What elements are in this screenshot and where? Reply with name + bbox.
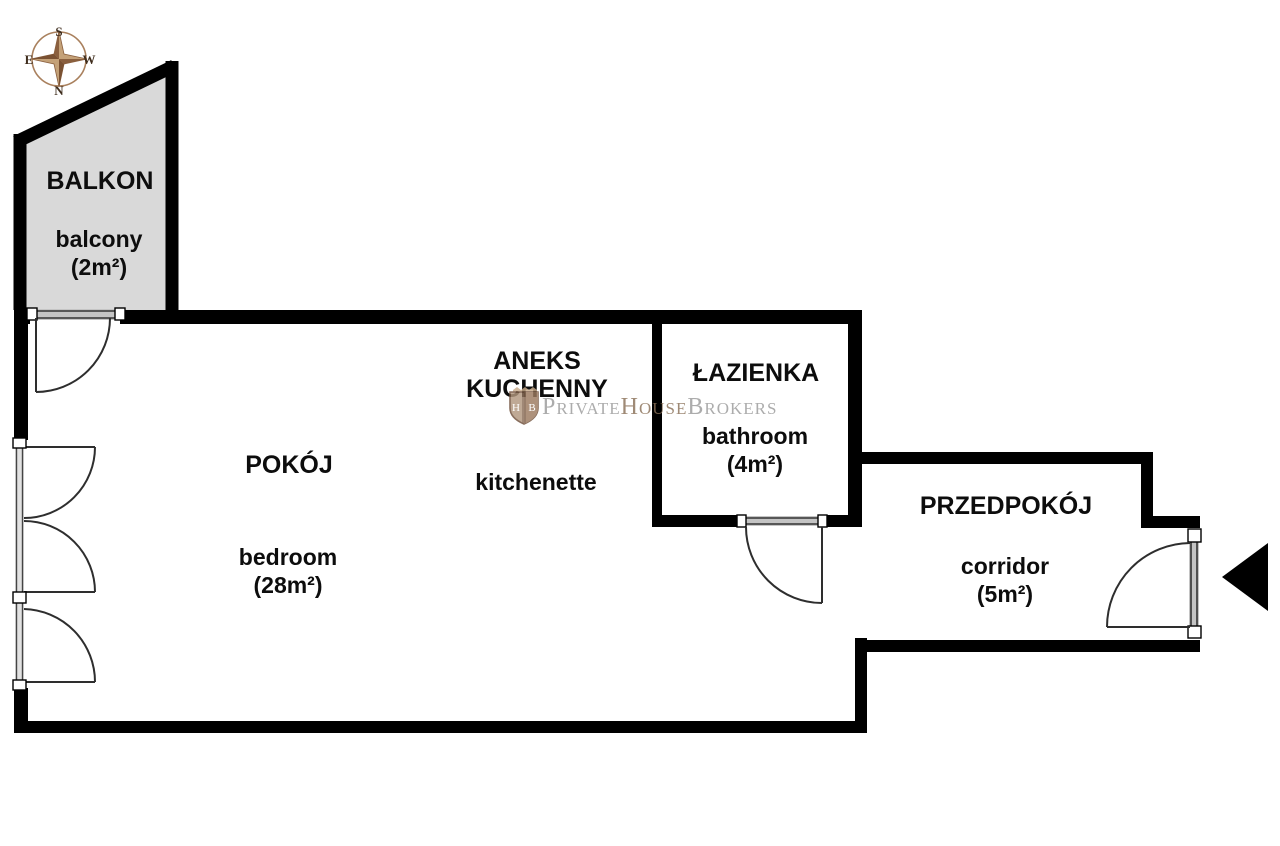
balcony-label-en: balcony (2m²): [56, 225, 143, 281]
floor-plan-page: S N E W BALKON balcony (2m²) POKÓJ bedro…: [0, 0, 1280, 846]
bedroom-area: (28m²): [239, 571, 337, 599]
bedroom-label-en: bedroom (28m²): [239, 543, 337, 599]
compass-label-north: N: [54, 83, 64, 98]
top-wall-bathroom: [652, 310, 862, 324]
corridor-bottom-wall: [855, 640, 1200, 652]
left-wall-upper: [14, 310, 28, 440]
bathroom-door-threshold: [737, 515, 827, 527]
corridor-label-en: corridor (5m²): [961, 552, 1049, 608]
balcony-area: (2m²): [56, 253, 143, 281]
balcony-label-pl: BALKON: [47, 167, 154, 195]
compass-label-west: W: [83, 52, 96, 67]
step-wall: [855, 638, 867, 733]
window-unit-lower: [15, 603, 24, 680]
bathroom-area: (4m²): [702, 450, 808, 478]
bathroom-right-wall: [848, 310, 862, 527]
floor-plan-drawing: S N E W: [0, 0, 1280, 846]
entrance-arrow: [1222, 543, 1268, 611]
bathroom-bottom-wall-left: [652, 515, 740, 527]
compass-label-east: E: [25, 52, 34, 67]
bathroom-label-pl: ŁAZIENKA: [693, 359, 819, 387]
bathroom-bottom-wall-right: [826, 515, 862, 527]
corridor-name-en: corridor: [961, 552, 1049, 580]
kitchenette-label-en: kitchenette: [475, 468, 596, 496]
bathroom-left-wall: [652, 310, 662, 527]
entrance-door-threshold: [1188, 529, 1201, 638]
bottom-wall-main: [14, 721, 867, 733]
window-mullion-3: [13, 680, 26, 690]
bathroom-label-en: bathroom (4m²): [702, 422, 808, 478]
window-unit-upper: [15, 448, 24, 592]
bedroom-name-en: bedroom: [239, 543, 337, 571]
corridor-label-pl: PRZEDPOKÓJ: [920, 492, 1092, 520]
balcony-door-swing: [36, 318, 110, 392]
window-mullion-2: [13, 592, 26, 603]
window-casement-top: [24, 447, 95, 518]
window-casement-bottom: [24, 609, 95, 682]
corridor-area: (5m²): [961, 580, 1049, 608]
window-casement-middle: [24, 521, 95, 592]
kitchenette-label-pl: ANEKS KUCHENNY: [466, 347, 608, 403]
bathroom-name-en: bathroom: [702, 422, 808, 450]
bathroom-door-swing: [746, 527, 822, 603]
kitchenette-name-pl-line1: ANEKS: [466, 347, 608, 375]
corridor-top-wall: [848, 452, 1153, 464]
window-mullion-1: [13, 438, 26, 448]
compass-rose: S N E W: [25, 24, 96, 98]
bedroom-label-pl: POKÓJ: [245, 451, 333, 479]
kitchenette-name-pl-line2: KUCHENNY: [466, 375, 608, 403]
entry-stub-wall: [1141, 516, 1200, 528]
top-wall-main: [120, 310, 652, 324]
entrance-door-swing: [1107, 543, 1190, 627]
balcony-name-en: balcony: [56, 225, 143, 253]
compass-label-south: S: [55, 24, 62, 39]
